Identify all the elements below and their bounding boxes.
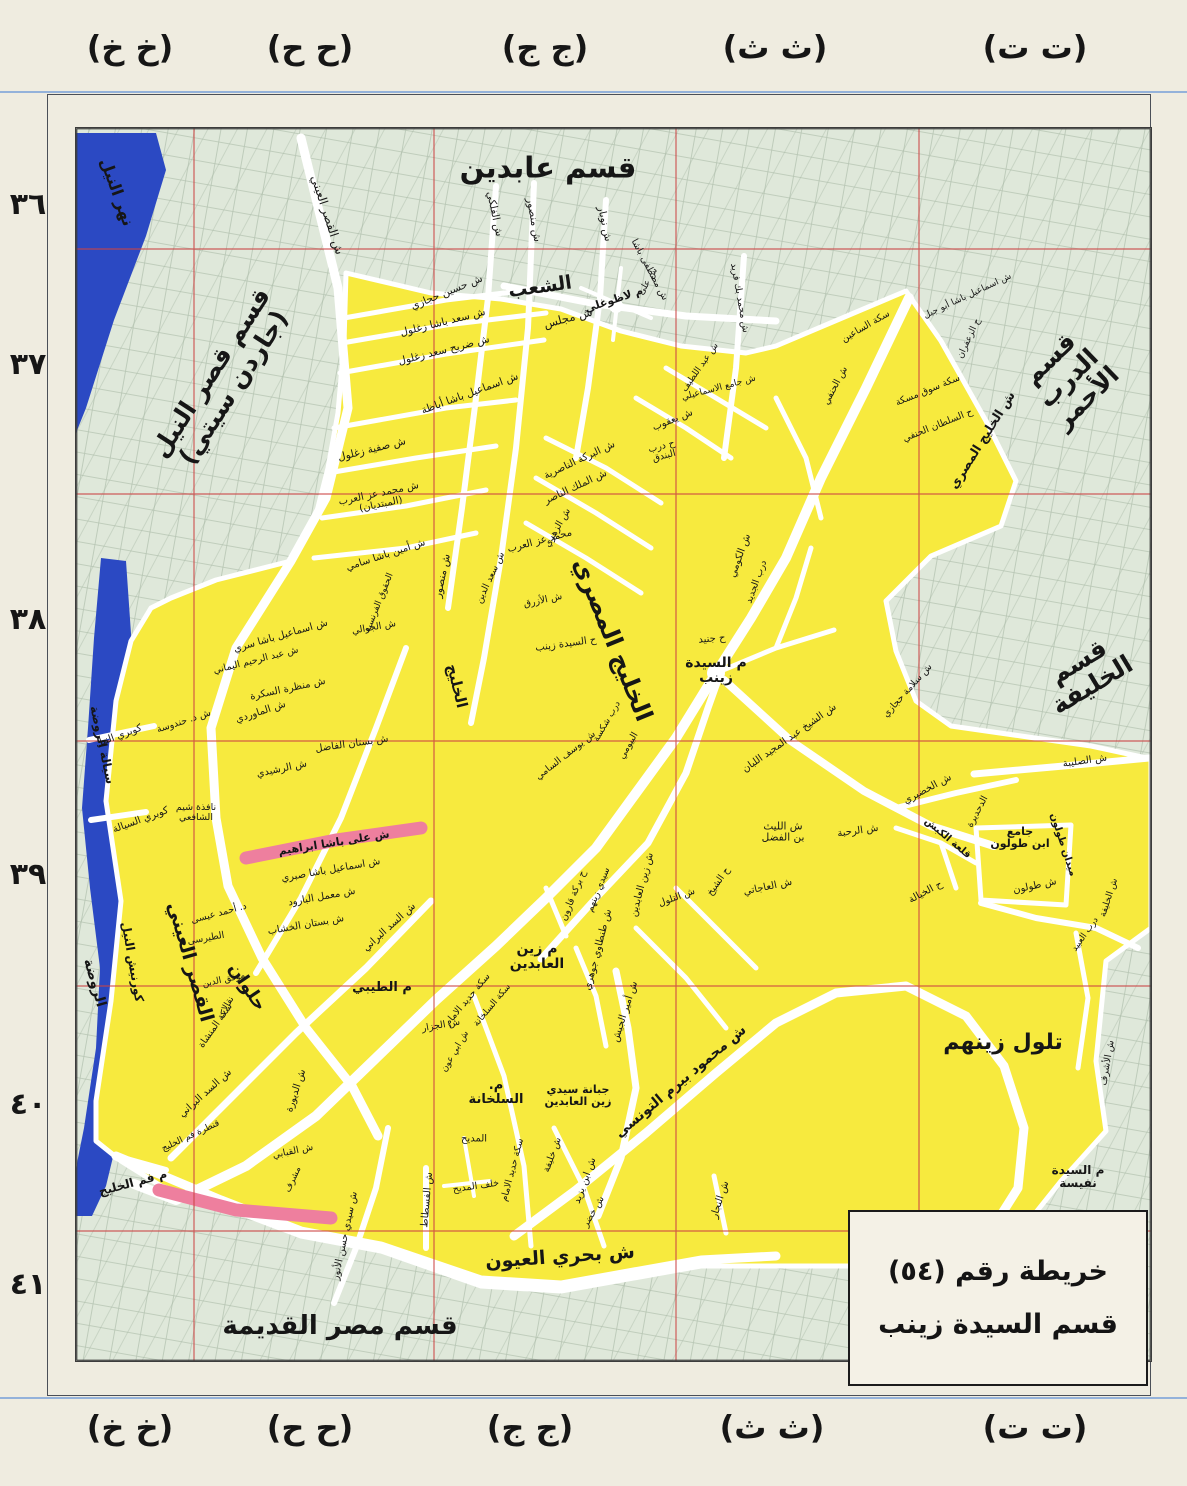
grid-col-label: (خ خ) [87, 1411, 174, 1446]
grid-row-label: ٣٩ [10, 859, 47, 891]
grid-col-label: (ث ث) [723, 31, 828, 66]
grid-col-label: (ج ج) [502, 31, 589, 66]
scan-line [0, 1397, 1187, 1399]
grid-col-label: (ت ت) [983, 31, 1088, 66]
scanned-map-page: خريطة رقم (٥٤) قسم السيدة زينب (خ خ)(ح ح… [0, 0, 1187, 1486]
grid-row-label: ٤١ [10, 1269, 47, 1301]
midan-lazoghly [609, 299, 623, 313]
grid-col-label: (ج ج) [487, 1411, 574, 1446]
grid-col-label: (ت ت) [983, 1411, 1088, 1446]
map-graphic [76, 128, 1151, 1361]
map-number-title: خريطة رقم (٥٤) [888, 1256, 1108, 1287]
midan-sayyida-zeinab [707, 664, 725, 682]
map-canvas [75, 127, 1152, 1362]
grid-col-label: (خ خ) [87, 31, 174, 66]
grid-col-label: (ث ث) [720, 1411, 825, 1446]
grid-row-label: ٣٦ [10, 189, 47, 221]
map-title-box: خريطة رقم (٥٤) قسم السيدة زينب [848, 1210, 1148, 1386]
grid-row-label: ٣٨ [10, 604, 47, 636]
scan-line [0, 91, 1187, 93]
grid-row-label: ٣٧ [10, 349, 47, 381]
map-district-title: قسم السيدة زينب [878, 1309, 1118, 1340]
grid-col-label: (ح ح) [267, 31, 354, 66]
grid-row-label: ٤٠ [10, 1089, 47, 1121]
grid-col-label: (ح ح) [267, 1411, 354, 1446]
